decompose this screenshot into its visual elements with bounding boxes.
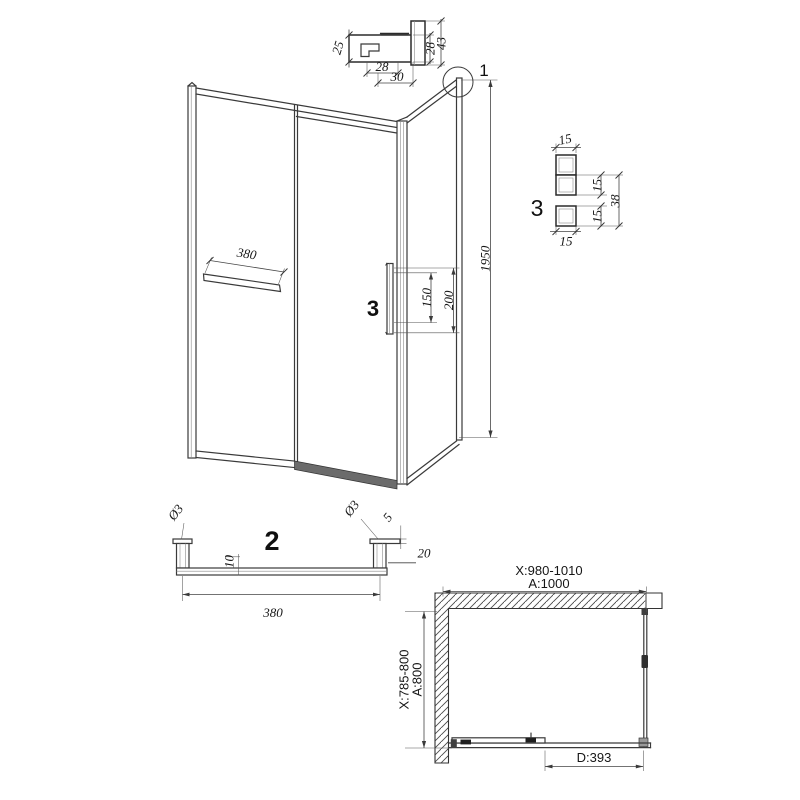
dim-150-label: 150 <box>419 287 434 307</box>
side-top-rail-inner <box>407 84 460 123</box>
figure-2-callout-label: 2 <box>264 526 279 556</box>
right-mount-cap <box>370 539 400 544</box>
elevation-view: 380 3 150 200 1950 1 <box>188 61 498 489</box>
dim-depth-label: A:800 <box>410 663 425 697</box>
dim-380-label: 380 <box>262 605 283 620</box>
wall-bracket-plan <box>451 739 457 748</box>
door-bottom-track <box>295 461 398 489</box>
door-roller <box>461 740 472 745</box>
handle-callout-label: 3 <box>367 296 379 321</box>
left-wall-profile <box>188 86 196 458</box>
profile-body <box>349 35 413 62</box>
dim-25-label: 25 <box>329 39 347 56</box>
dim-28-bottom-label: 28 <box>376 59 390 74</box>
wall-hatch-top <box>435 593 646 609</box>
right-post-profile <box>397 121 407 484</box>
left-mount-cap <box>173 539 192 544</box>
corner-bracket-top <box>642 609 649 616</box>
dim-5-label: 5 <box>380 510 396 525</box>
top-rail-inner <box>196 94 397 128</box>
dim-15-top-label: 15 <box>557 130 573 147</box>
dim-line-380-bar <box>210 261 284 273</box>
detail-1-callout-label: 1 <box>479 61 488 80</box>
dim-towel-bar-label: 380 <box>235 244 258 262</box>
drawing-page: 25 28 43 28 30 <box>0 0 800 800</box>
handle-plan-mark <box>642 655 649 668</box>
dim-15-upper-label: 15 <box>590 179 605 193</box>
detail-1-view: 25 28 43 28 30 <box>329 18 449 88</box>
corner-bracket-bottom <box>639 738 648 747</box>
towel-bar-figure-view: Ø3 Ø3 5 10 20 380 2 <box>164 497 431 620</box>
dim-30-label: 30 <box>390 69 405 84</box>
dia-3-right-label: Ø3 <box>340 497 363 520</box>
side-bottom-rail-inner <box>407 445 459 486</box>
dim-43-label: 43 <box>434 37 449 51</box>
side-bottom-rail-outer <box>407 441 457 479</box>
towel-bar <box>204 274 281 292</box>
dim-width-label: A:1000 <box>528 576 569 591</box>
side-top-rail-outer <box>407 79 458 117</box>
technical-drawing-canvas: 25 28 43 28 30 <box>0 0 800 800</box>
dim-20-label: 20 <box>418 546 432 561</box>
dim-15-bottom-label: 15 <box>560 234 574 249</box>
left-mount-post <box>177 544 190 569</box>
dim-38-label: 38 <box>608 194 623 209</box>
dim-15-lower-label: 15 <box>590 210 605 224</box>
dim-1950-label: 1950 <box>478 245 493 272</box>
side-wall-profile <box>457 78 463 440</box>
dim-10-label: 10 <box>222 555 237 569</box>
right-mount-post <box>374 544 387 569</box>
detail-3-view: 15 15 15 38 15 3 <box>531 130 623 248</box>
dim-200-label: 200 <box>441 290 456 310</box>
plan-view: X:980-1010 A:1000 X:785-800 A:800 D:393 <box>397 563 663 771</box>
door-handle <box>387 264 393 335</box>
detail-3-callout-label: 3 <box>531 195 544 221</box>
dia-3-left-label: Ø3 <box>164 501 187 524</box>
dim-door-label: D:393 <box>577 750 612 765</box>
wall-hatch-left <box>435 609 449 764</box>
